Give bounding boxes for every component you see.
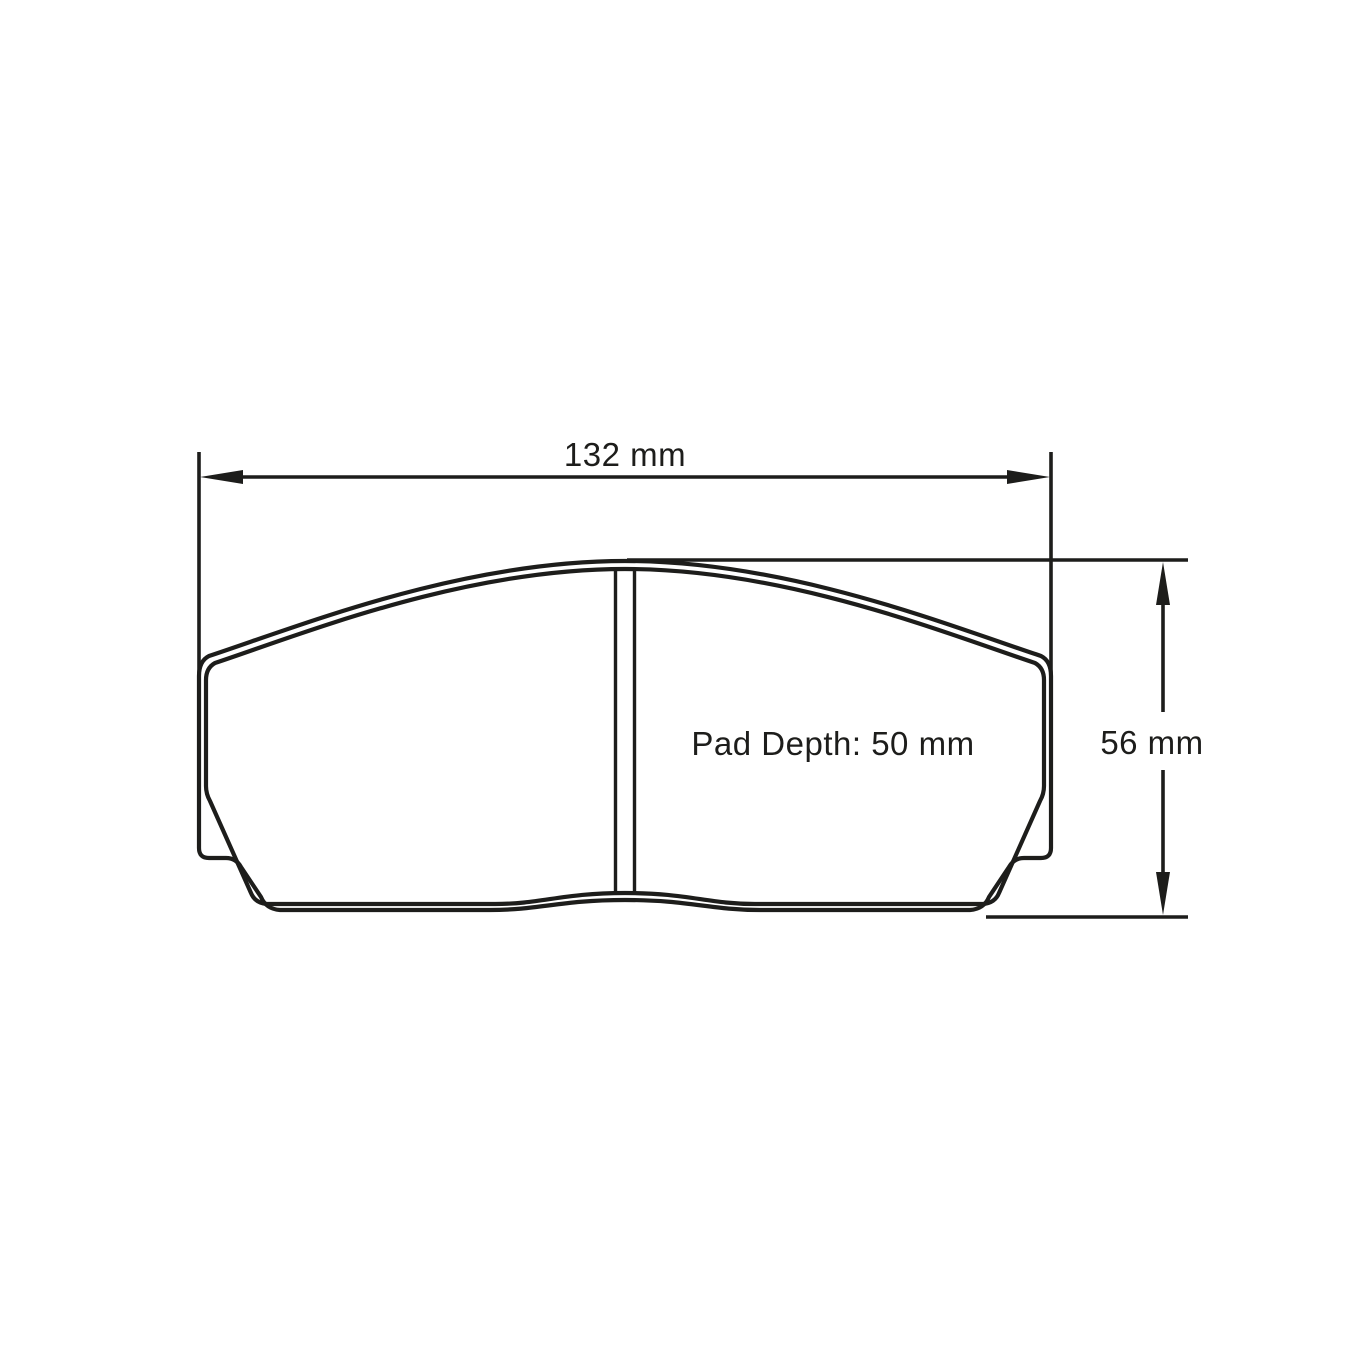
height-arrowhead-down xyxy=(1156,872,1170,915)
pad-depth-label: Pad Depth: 50 mm xyxy=(691,725,974,762)
width-arrowhead-left xyxy=(200,470,243,484)
height-arrowhead-up xyxy=(1156,562,1170,605)
width-arrowhead-right xyxy=(1007,470,1050,484)
technical-drawing-canvas: 132 mm 56 mm Pad Depth: 50 mm xyxy=(0,0,1350,1350)
height-dimension-label: 56 mm xyxy=(1100,724,1203,761)
width-dimension-label: 132 mm xyxy=(564,436,686,473)
brake-pad-dimension-drawing: 132 mm 56 mm Pad Depth: 50 mm xyxy=(0,0,1350,1350)
center-slot xyxy=(616,570,635,892)
width-dimension: 132 mm xyxy=(199,436,1051,676)
